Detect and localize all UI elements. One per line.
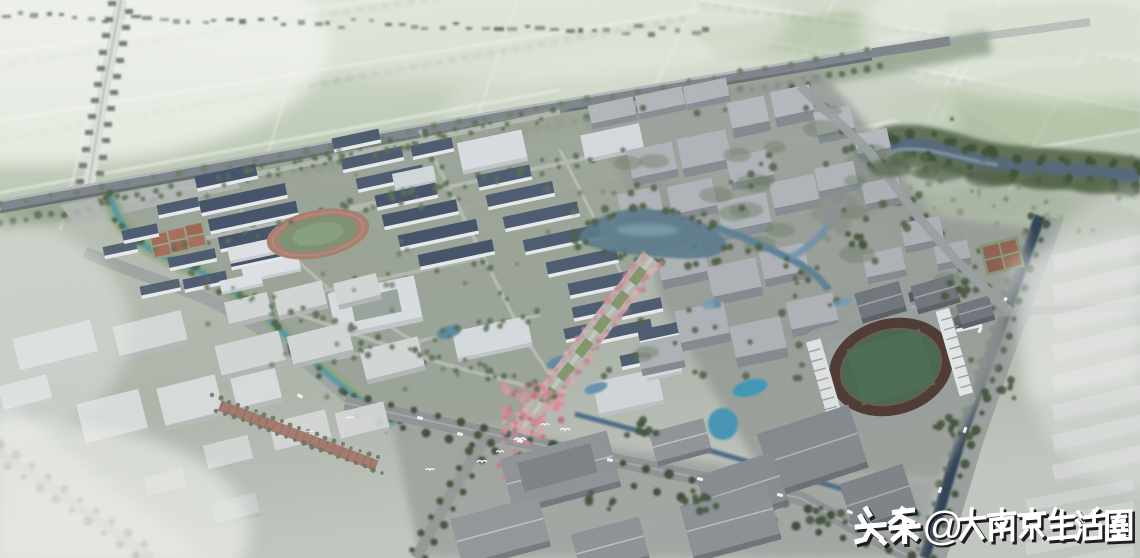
svg-text:@: @ (922, 503, 964, 549)
